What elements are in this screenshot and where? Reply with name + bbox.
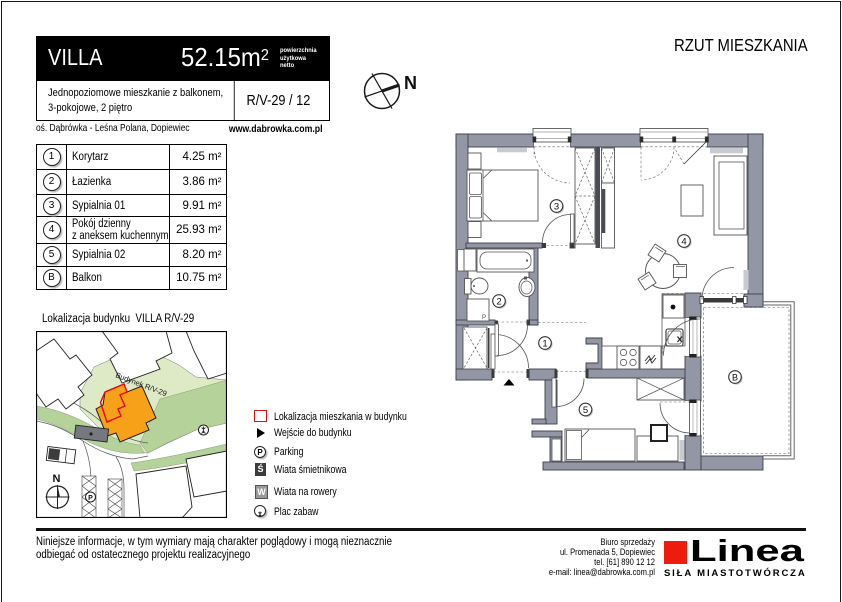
svg-text:2: 2 bbox=[496, 296, 501, 307]
svg-text:P: P bbox=[482, 315, 486, 321]
svg-text:1: 1 bbox=[542, 338, 547, 349]
svg-text:B: B bbox=[732, 372, 738, 382]
svg-text:5: 5 bbox=[583, 405, 588, 416]
svg-text:4: 4 bbox=[681, 236, 686, 247]
svg-text:N: N bbox=[404, 73, 417, 93]
svg-text:3: 3 bbox=[554, 201, 559, 212]
